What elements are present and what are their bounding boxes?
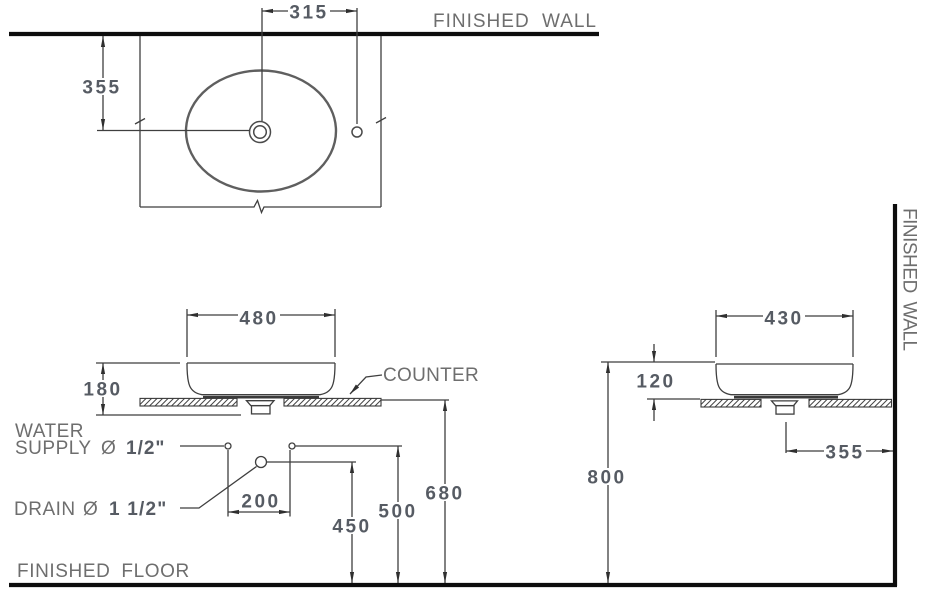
svg-text:FINISHED FLOOR: FINISHED FLOOR — [17, 561, 190, 582]
svg-text:800: 800 — [587, 468, 626, 489]
svg-text:1/2": 1/2" — [126, 438, 165, 459]
svg-text:315: 315 — [289, 3, 328, 24]
svg-text:500: 500 — [378, 502, 417, 523]
svg-text:SUPPLY: SUPPLY — [15, 438, 92, 459]
svg-text:COUNTER: COUNTER — [383, 365, 479, 386]
svg-text:180: 180 — [83, 380, 122, 401]
svg-text:DRAIN: DRAIN — [14, 499, 76, 520]
svg-text:Ø: Ø — [83, 499, 99, 520]
svg-text:FINISHED WALL: FINISHED WALL — [433, 11, 597, 32]
svg-text:680: 680 — [425, 484, 464, 505]
svg-text:Ø: Ø — [101, 438, 117, 459]
svg-text:120: 120 — [636, 372, 675, 393]
svg-text:200: 200 — [241, 492, 280, 513]
svg-text:FINISHED WALL: FINISHED WALL — [899, 208, 920, 351]
svg-text:450: 450 — [332, 517, 371, 538]
svg-text:355: 355 — [82, 78, 121, 99]
svg-text:355: 355 — [825, 443, 864, 464]
svg-text:480: 480 — [239, 309, 278, 330]
svg-text:430: 430 — [764, 309, 803, 330]
svg-text:1 1/2": 1 1/2" — [109, 499, 167, 520]
